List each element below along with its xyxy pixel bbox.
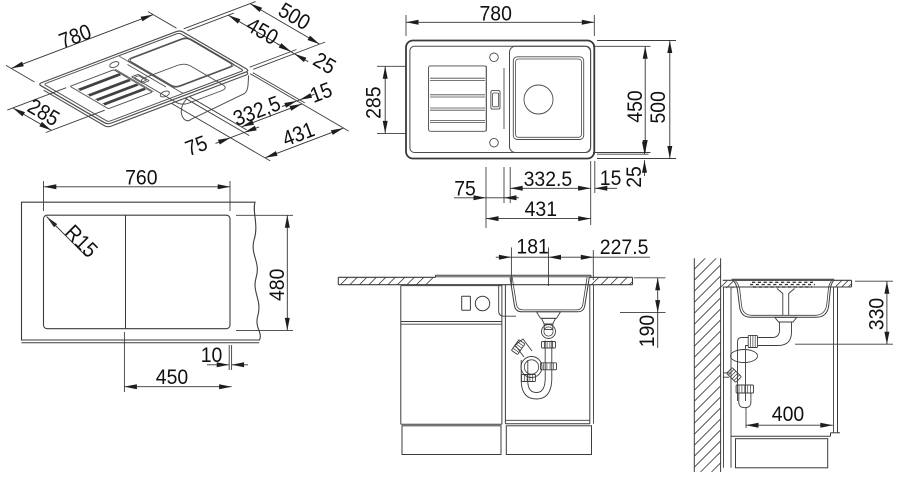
svg-text:190: 190 [634, 315, 659, 347]
svg-text:332.5: 332.5 [524, 166, 573, 191]
svg-text:75: 75 [454, 175, 476, 200]
svg-text:400: 400 [772, 401, 804, 426]
svg-text:227.5: 227.5 [600, 234, 649, 259]
svg-text:10: 10 [201, 342, 223, 367]
svg-text:480: 480 [264, 269, 289, 301]
svg-text:330: 330 [863, 298, 888, 330]
svg-text:450: 450 [156, 364, 188, 389]
svg-text:285: 285 [361, 87, 386, 119]
svg-text:431: 431 [525, 196, 557, 221]
svg-text:181: 181 [516, 233, 548, 258]
svg-text:15: 15 [600, 165, 622, 190]
svg-text:25: 25 [621, 166, 646, 188]
svg-text:760: 760 [125, 164, 157, 189]
svg-text:450: 450 [622, 90, 647, 122]
svg-text:500: 500 [645, 91, 670, 123]
svg-text:780: 780 [480, 0, 512, 25]
